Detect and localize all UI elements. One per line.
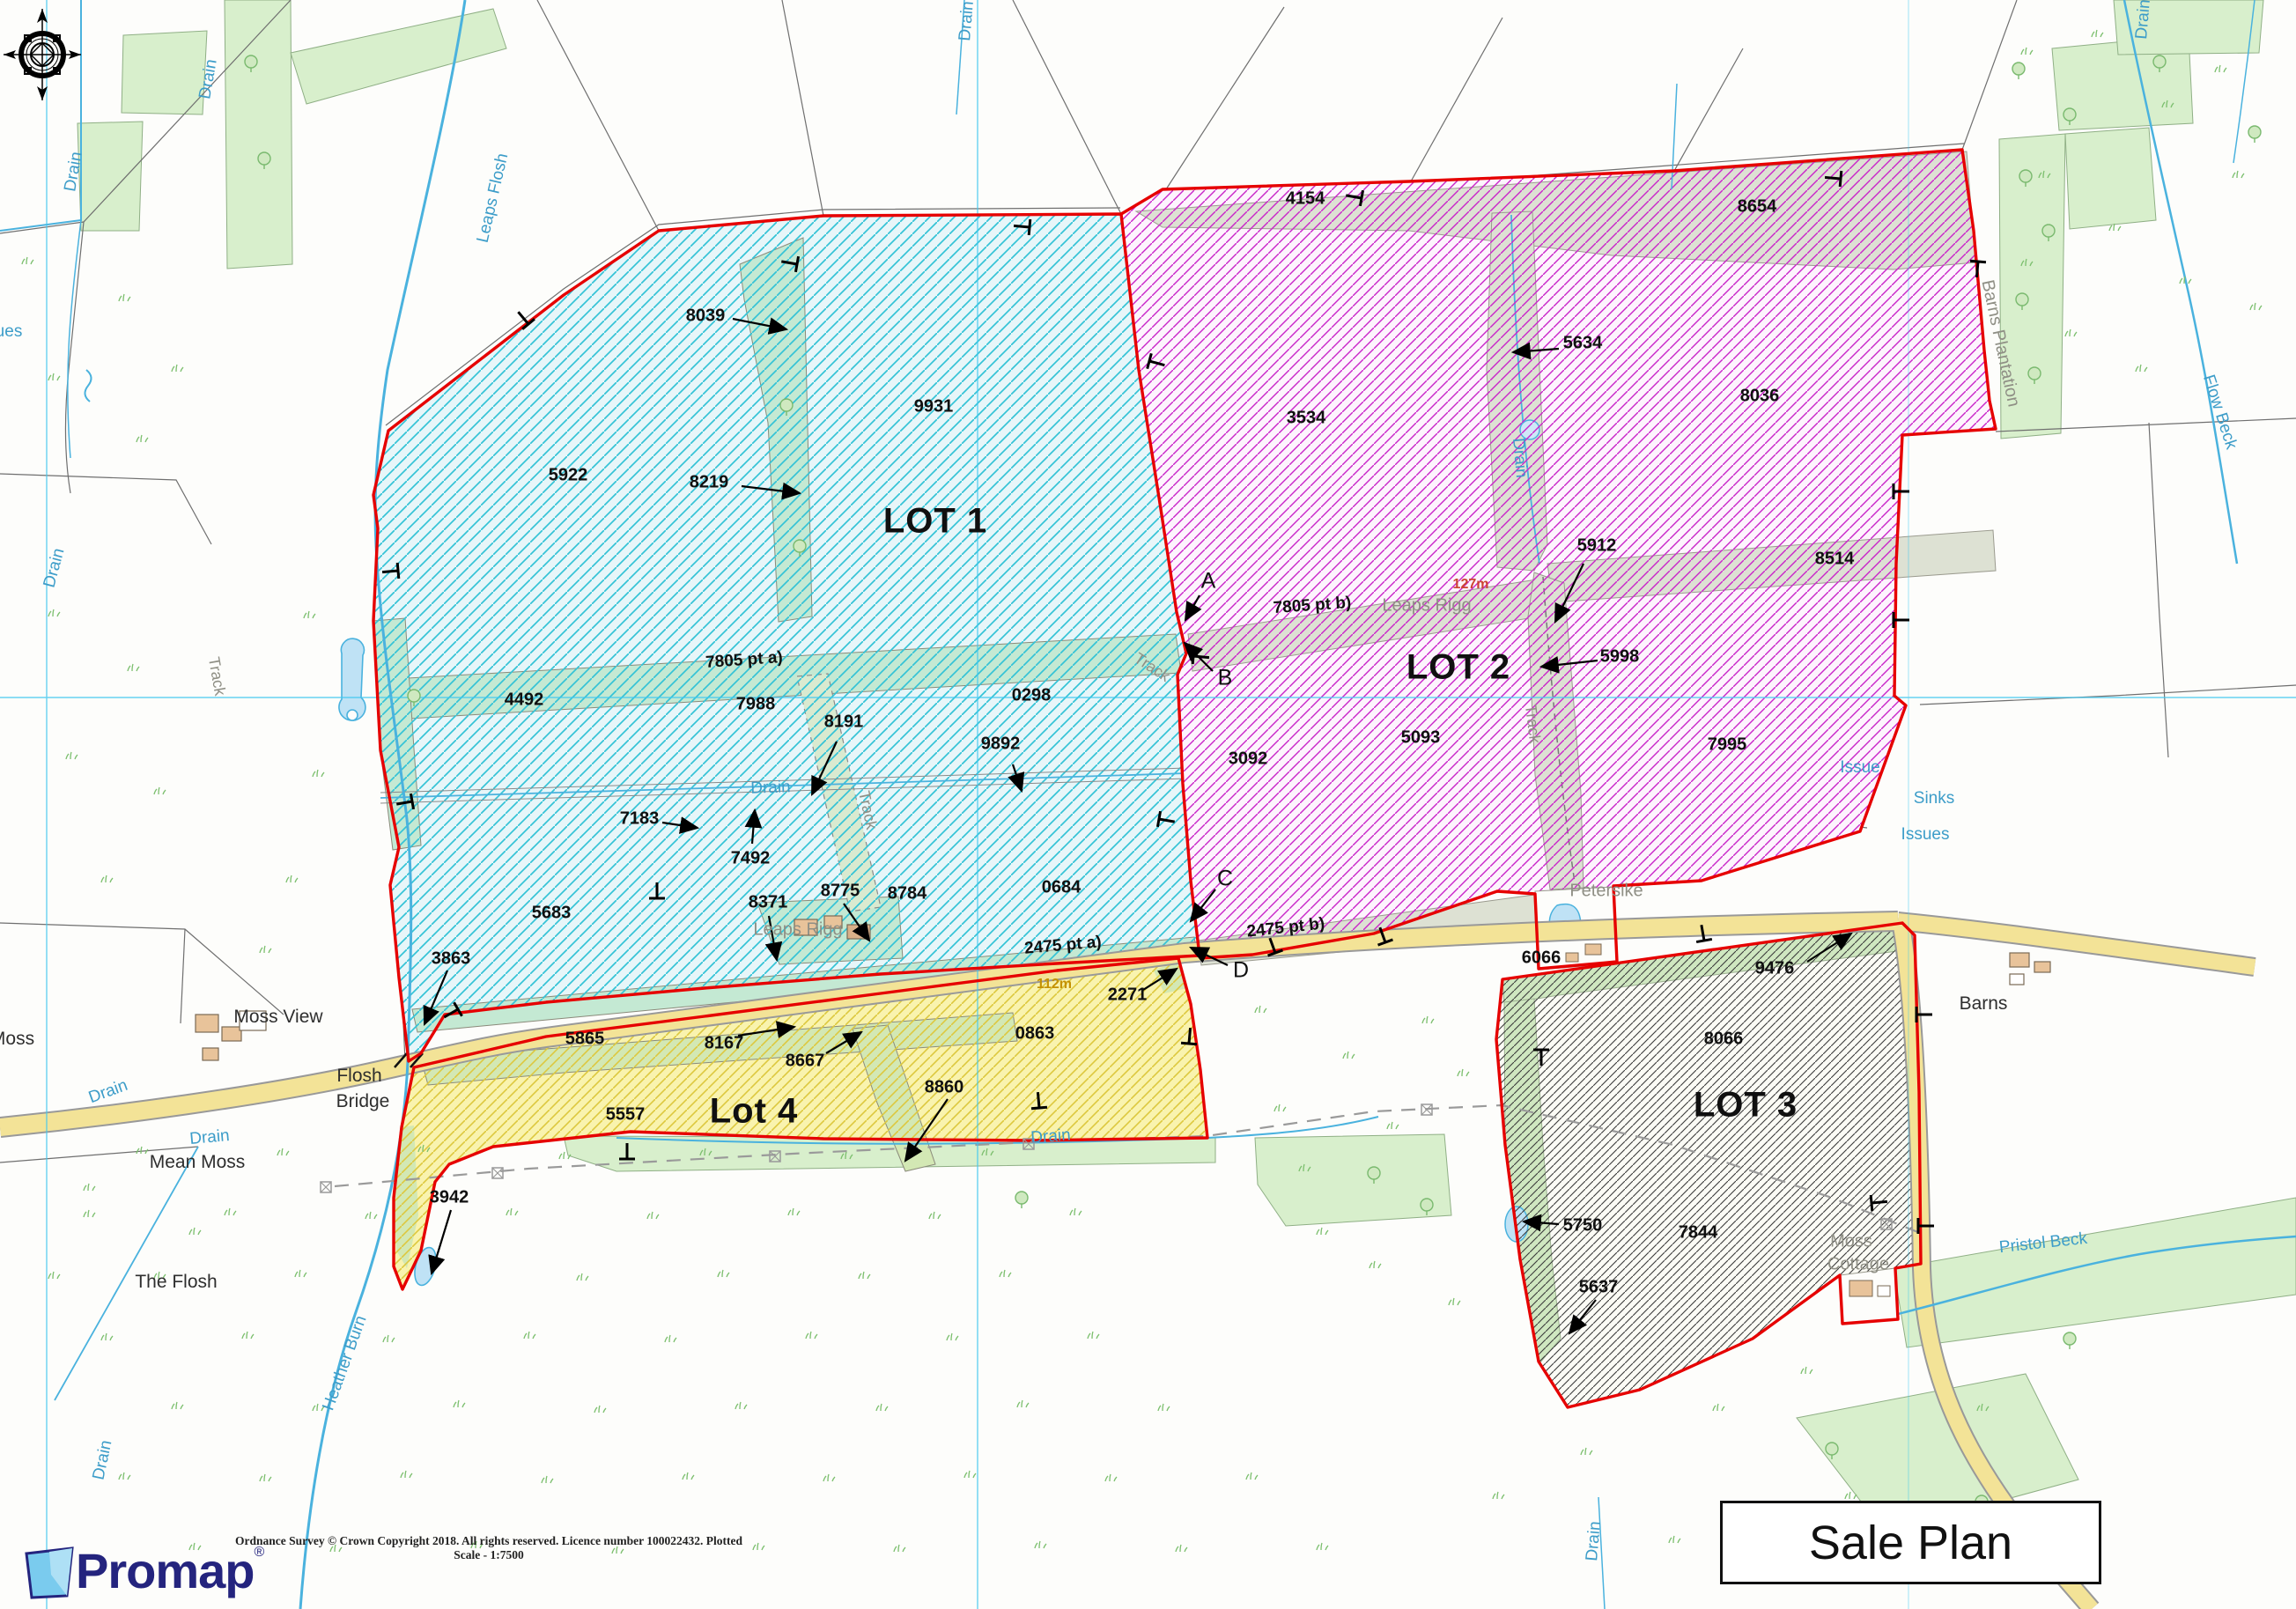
promap-logo-text: Promap <box>76 1545 255 1598</box>
map-canvas <box>0 0 2296 1609</box>
copyright-attribution: Ordnance Survey © Crown Copyright 2018. … <box>225 1534 753 1562</box>
promap-logo: Promap ® <box>23 1545 264 1601</box>
promap-logo-icon <box>23 1545 76 1601</box>
sale-plan-map: LOT 1LOT 2LOT 3Lot 480399931592282197988… <box>0 0 2296 1609</box>
registered-mark: ® <box>255 1545 265 1561</box>
sale-plan-title: Sale Plan <box>1809 1516 2012 1570</box>
sale-plan-title-box: Sale Plan <box>1720 1501 2101 1584</box>
moss-cottage-yard <box>1840 1268 1898 1324</box>
